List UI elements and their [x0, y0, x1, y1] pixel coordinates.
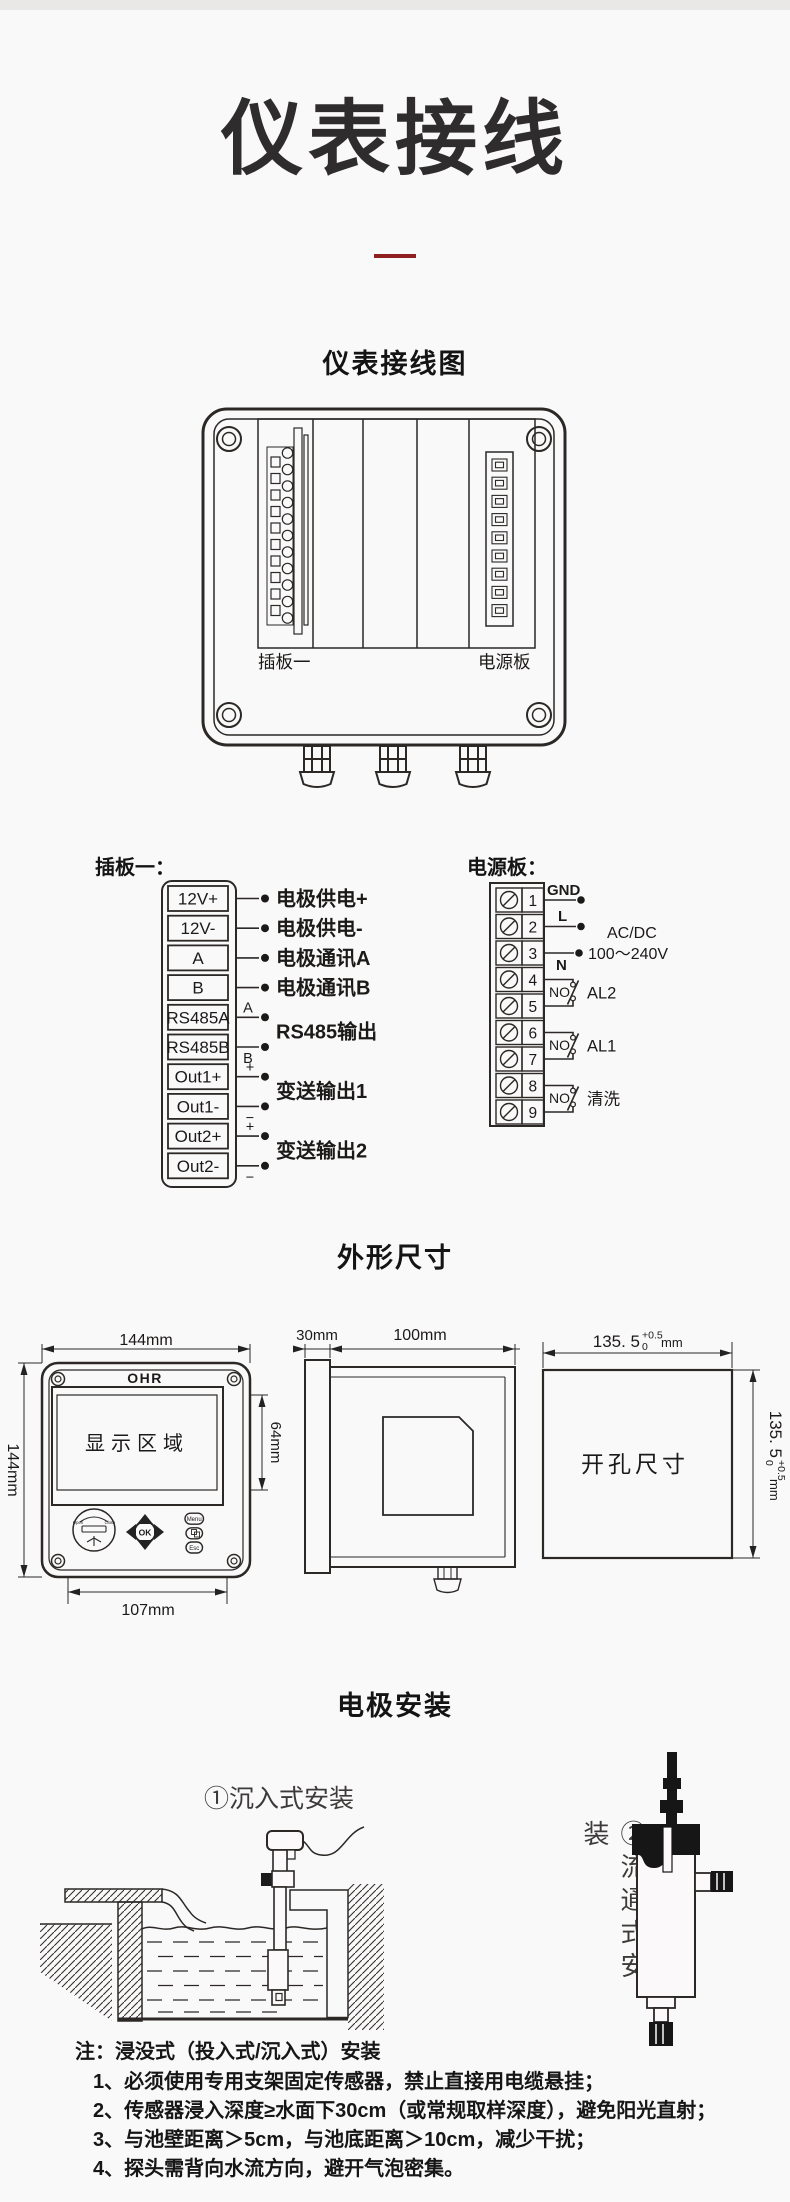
wire-dots	[575, 896, 585, 957]
powerboard-wire-labels: GND L N AC/DC 100～240V NO NO NO AL2 AL1 …	[547, 882, 668, 1109]
platform	[65, 1889, 162, 1902]
screen-height-dim: 64mm	[267, 1422, 284, 1464]
wire-polarity-marks: A B + − + −	[243, 1001, 254, 1187]
acdc-label-line1: AC/DC	[607, 925, 657, 942]
menu-button-label: Menu	[187, 1517, 202, 1523]
relay-wash-label: 清洗	[587, 1090, 621, 1109]
powerboard-title: 电源板：	[467, 851, 547, 880]
tank-left-wall	[118, 1902, 142, 2021]
powerboard-diagram: 1 2 3 4 5 6 7 8 9 GND L N AC/DC 100～240V…	[455, 878, 790, 1148]
side-view	[294, 1344, 520, 1593]
side-gland-icon	[434, 1567, 461, 1593]
note-item: 4、探头需背向水流方向，避开气泡密集。	[93, 2159, 778, 2180]
esc-button-label: Esc	[189, 1546, 199, 1552]
enclosure-outline	[203, 409, 565, 787]
flow-install-drawing	[560, 1750, 740, 2050]
enclosure-drawing: 插板一 电源板	[195, 405, 575, 795]
plug-card-connector	[267, 428, 308, 634]
cutout-width-dim: 135. 5 +0.5 0 mm	[593, 1330, 683, 1354]
cable-gland-icon	[300, 746, 490, 787]
relay-al2-label: AL2	[587, 985, 616, 1003]
wire-label: 电极通讯A	[276, 946, 370, 970]
wiring-section-heading: 仪表接线图	[0, 342, 790, 381]
tank	[40, 1884, 384, 2030]
usb-port-icon	[73, 1509, 115, 1551]
terminal-number: 9	[528, 1105, 537, 1122]
relay-al1-label: AL1	[587, 1038, 616, 1056]
wire-label: 变送输出1	[276, 1079, 367, 1103]
wire-label: 变送输出2	[276, 1139, 367, 1163]
plus-mark: +	[246, 1060, 254, 1076]
enclosure-right-slot-label: 电源板	[478, 652, 531, 672]
terminal-label: Out1+	[175, 1068, 222, 1087]
dimensions-section-heading: 外形尺寸	[0, 1236, 790, 1275]
body-depth-dim: 100mm	[393, 1327, 446, 1344]
wire-label: 电极通讯B	[276, 976, 370, 1000]
front-width-dim: 144mm	[119, 1332, 172, 1349]
no-contact-label: NO	[549, 1090, 570, 1106]
wire-dots	[261, 895, 269, 1170]
inflow-pipe	[162, 1889, 206, 1931]
plugboard-title: 插板一：	[95, 851, 175, 880]
cutout-value: 135. 5	[593, 1332, 640, 1351]
plugboard-terminal-labels: 12V+ 12V- A B RS485A RS485B Out1+ Out1- …	[166, 890, 230, 1176]
acdc-label-line2: 100～240V	[588, 946, 668, 963]
terminal-number: 5	[528, 999, 537, 1016]
terminal-number: 2	[528, 919, 537, 936]
ground-hatch-right	[348, 1884, 384, 2030]
note-item: 3、与池壁距离＞5cm，与池底距离＞10cm，减少干扰；	[93, 2130, 778, 2151]
minus-mark: −	[246, 1170, 254, 1186]
gnd-label: GND	[547, 882, 581, 899]
display-area-label: 显示区域	[85, 1432, 189, 1455]
terminal-number: 6	[528, 1025, 537, 1042]
live-label: L	[558, 908, 567, 925]
plugboard-wire-labels: 电极供电+ 电极供电- 电极通讯A 电极通讯B RS485输出 变送输出1 变送…	[276, 887, 377, 1163]
probe-tip	[272, 1990, 285, 2005]
rs485-a-mark: A	[243, 1001, 253, 1017]
note-item: 2、传感器浸入深度≥水面下30cm（或常规取样深度），避免阳光直射；	[93, 2101, 778, 2122]
page-title: 仪表接线	[0, 92, 790, 188]
cutout-height-dim: 135. 5 +0.5 0 mm	[763, 1411, 787, 1501]
dimensions-drawing: OHR 显示区域 OK Menu Esc Open Close 144mm 14…	[0, 1320, 790, 1625]
terminal-number: 1	[528, 893, 537, 910]
wire-label: 电极供电-	[276, 916, 363, 940]
ok-button-label: OK	[139, 1528, 153, 1538]
terminal-number: 3	[528, 946, 537, 963]
bezel-depth-dim: 30mm	[296, 1327, 338, 1344]
outlet-fitting	[711, 1871, 733, 1892]
immersion-install-drawing	[40, 1820, 400, 2045]
usb-close-label: Close	[105, 1520, 116, 1525]
product-doc-page: 仪表接线 仪表接线图	[0, 0, 790, 2202]
inlet-flange	[647, 1997, 675, 2008]
terminal-label: Out1-	[177, 1097, 220, 1116]
enclosure-left-slot-label: 插板一	[258, 652, 311, 672]
flow-cell	[632, 1752, 733, 2046]
wire-label: RS485输出	[276, 1020, 377, 1044]
ground-hatch-left	[40, 1924, 112, 2021]
terminal-label: 12V+	[178, 890, 218, 909]
installation-notes: 注：浸没式（投入式/沉入式）安装 1、必须使用专用支架固定传感器，禁止直接用电缆…	[64, 2042, 778, 2188]
terminal-label: A	[192, 949, 204, 968]
terminal-label: RS485B	[166, 1038, 229, 1057]
notes-title: 注：浸没式（投入式/沉入式）安装	[75, 2042, 778, 2063]
terminal-label: Out2+	[175, 1127, 222, 1146]
cutout-unit: mm	[767, 1479, 782, 1501]
cutout-unit: mm	[661, 1335, 683, 1350]
usb-open-label: Open	[73, 1520, 84, 1525]
water-texture	[147, 1942, 323, 2012]
probe-connector-stack	[660, 1752, 683, 1824]
electrode-section-heading: 电极安装	[0, 1684, 790, 1723]
flow-cell-body	[637, 1853, 695, 1997]
tank-right-wall-bracket	[290, 1890, 348, 2018]
card-cage	[258, 419, 535, 648]
cutout-tol-sub: 0	[642, 1341, 648, 1353]
powerboard-terminal-numbers: 1 2 3 4 5 6 7 8 9	[528, 893, 537, 1122]
wire-label: 电极供电+	[276, 887, 368, 911]
power-card-connector	[486, 452, 513, 626]
red-divider	[374, 254, 416, 258]
terminal-label: Out2-	[177, 1157, 220, 1176]
terminal-number: 8	[528, 1078, 537, 1095]
probe-clamp	[261, 1873, 272, 1886]
page-flip-icon	[192, 1530, 200, 1538]
terminal-number: 7	[528, 1052, 537, 1069]
neutral-label: N	[556, 957, 567, 974]
probe-shaft	[663, 1827, 672, 1872]
note-item: 1、必须使用专用支架固定传感器，禁止直接用电缆悬挂；	[93, 2072, 778, 2093]
plugboard-diagram: 12V+ 12V- A B RS485A RS485B Out1+ Out1- …	[90, 878, 435, 1198]
no-contact-label: NO	[549, 1037, 570, 1053]
cutout-label: 开孔尺寸	[581, 1451, 689, 1477]
plus-mark: +	[246, 1120, 254, 1136]
terminal-label: B	[192, 979, 203, 998]
probe-cap	[267, 1831, 303, 1850]
water-surface	[142, 1927, 327, 1929]
terminal-number: 4	[528, 972, 537, 989]
terminal-label: RS485A	[166, 1008, 230, 1027]
outlet-stub	[695, 1873, 711, 1891]
no-contact-label: NO	[549, 984, 570, 1000]
cutout-tol-sup: +0.5	[775, 1460, 787, 1481]
terminal-label: 12V-	[181, 919, 216, 938]
powerboard-wires	[544, 900, 579, 1112]
cutout-tol-sub: 0	[763, 1460, 775, 1466]
cutout-value: 135. 5	[766, 1411, 785, 1458]
panel-cutout-view	[543, 1342, 760, 1558]
slot-dividers	[313, 419, 469, 648]
brand-logo: OHR	[127, 1370, 163, 1386]
front-bottom-width-dim: 107mm	[121, 1602, 174, 1619]
cutout-tol-sup: +0.5	[642, 1330, 663, 1342]
top-strip	[0, 0, 790, 10]
immersion-install-title: ①沉入式安装	[204, 1779, 354, 1815]
front-height-dim: 144mm	[4, 1443, 21, 1496]
